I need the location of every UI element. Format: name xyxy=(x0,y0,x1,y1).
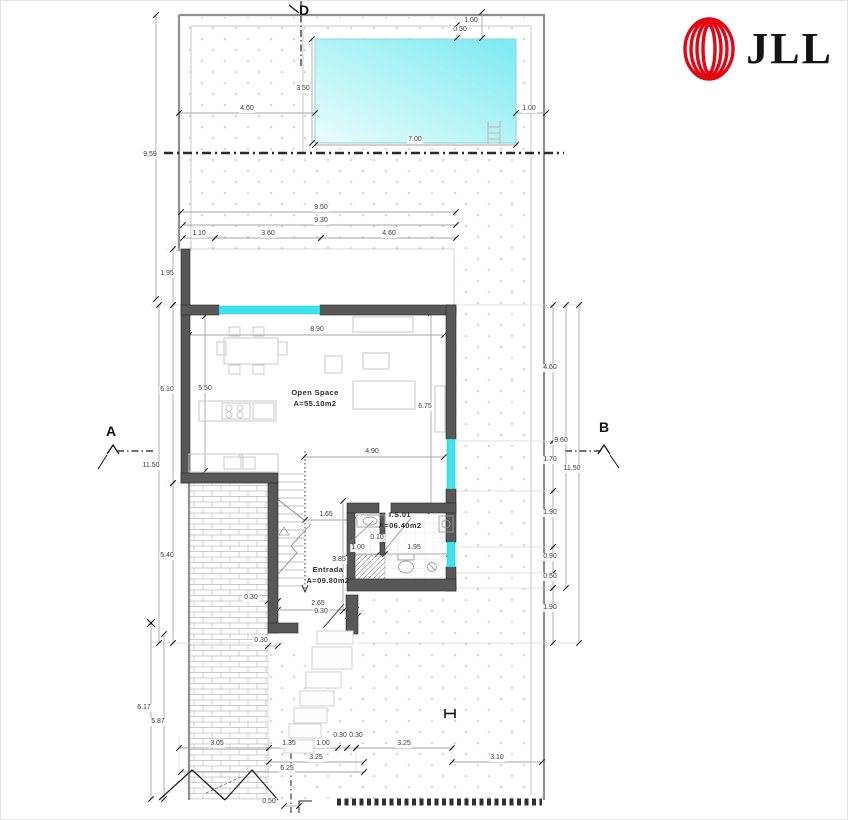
section-marker-a: A xyxy=(106,423,116,439)
dimension-label: 11.50 xyxy=(563,465,582,473)
dimension-label: 1.00 xyxy=(521,105,537,113)
dimension-label: 0.30 xyxy=(313,608,329,616)
dimension-label: 1.10 xyxy=(191,230,207,238)
dimension-label: 3.10 xyxy=(489,754,505,762)
dimension-label: 4.60 xyxy=(381,230,397,238)
brand-logo: JLL xyxy=(681,17,833,81)
dimension-label: 11.50 xyxy=(142,462,161,470)
dimension-label: 8.90 xyxy=(309,326,325,334)
dimension-label: 0.90 xyxy=(542,553,558,561)
dimension-label: 3.85 xyxy=(331,556,347,564)
dimension-label: 4.90 xyxy=(364,448,380,456)
dimension-label: 3.60 xyxy=(260,230,276,238)
dimension-label: 1.90 xyxy=(542,604,558,612)
dimension-label: 0.30 xyxy=(348,732,364,740)
dimension-label: 3.25 xyxy=(308,754,324,762)
dimension-label: 3.25 xyxy=(396,740,412,748)
dimension-label: 6.17 xyxy=(136,704,152,712)
floor-plan-page: 1.000.503.504.601.007.009.599.509.301.10… xyxy=(0,0,848,820)
dimension-label: 9.59 xyxy=(142,151,158,159)
dimension-label: 1.95 xyxy=(159,270,175,278)
brand-name: JLL xyxy=(746,27,833,71)
dimension-label: 5.40 xyxy=(159,552,175,560)
dimension-label: 0.10 xyxy=(369,534,385,542)
room-label-entrada: EntradaA=09.80m2 xyxy=(306,564,349,586)
dimension-label: 0.30 xyxy=(243,594,259,602)
jll-rings-icon xyxy=(681,17,737,81)
dimension-label: 0.30 xyxy=(253,637,269,645)
dimension-label: 1.90 xyxy=(542,509,558,517)
dimension-label: 9.60 xyxy=(553,437,569,445)
dimension-label: 1.00 xyxy=(463,17,479,25)
dimension-label: 3.05 xyxy=(209,740,225,748)
dimension-label: 5.87 xyxy=(150,718,166,726)
dimension-label: 6.25 xyxy=(279,765,295,773)
dimension-label: 9.50 xyxy=(313,204,329,212)
dimension-label: 0.50 xyxy=(452,26,468,34)
dimension-label: 4.60 xyxy=(542,364,558,372)
room-label-is01: I.S.01A=06.40m2 xyxy=(378,509,421,531)
dimension-label: 2.65 xyxy=(310,600,326,608)
dimension-label: 0.50 xyxy=(261,798,277,806)
dimension-label: 6.10 xyxy=(159,386,175,394)
dimension-label: 3.50 xyxy=(295,85,311,93)
dimension-label: 9.30 xyxy=(313,217,329,225)
section-marker-b: B xyxy=(599,419,609,435)
dimension-label: 1.95 xyxy=(406,544,422,552)
dimension-label: 1.70 xyxy=(542,456,558,464)
dimension-label: 4.60 xyxy=(239,105,255,113)
dimension-label: 0.30 xyxy=(332,732,348,740)
dimension-label: 6.75 xyxy=(417,403,433,411)
dimension-label: 1.00 xyxy=(315,740,331,748)
swimming-pool xyxy=(315,39,516,144)
dimension-label: 1.65 xyxy=(318,511,334,519)
room-label-open-space: Open SpaceA=55.10m2 xyxy=(291,387,338,409)
section-marker-d: D xyxy=(299,2,309,18)
dimension-label: 0.50 xyxy=(542,573,558,581)
dimension-label: 7.00 xyxy=(407,136,423,144)
dimension-label: 5.50 xyxy=(197,385,213,393)
dimension-label: 1.00 xyxy=(350,544,366,552)
dimension-label: 1.35 xyxy=(281,740,297,748)
